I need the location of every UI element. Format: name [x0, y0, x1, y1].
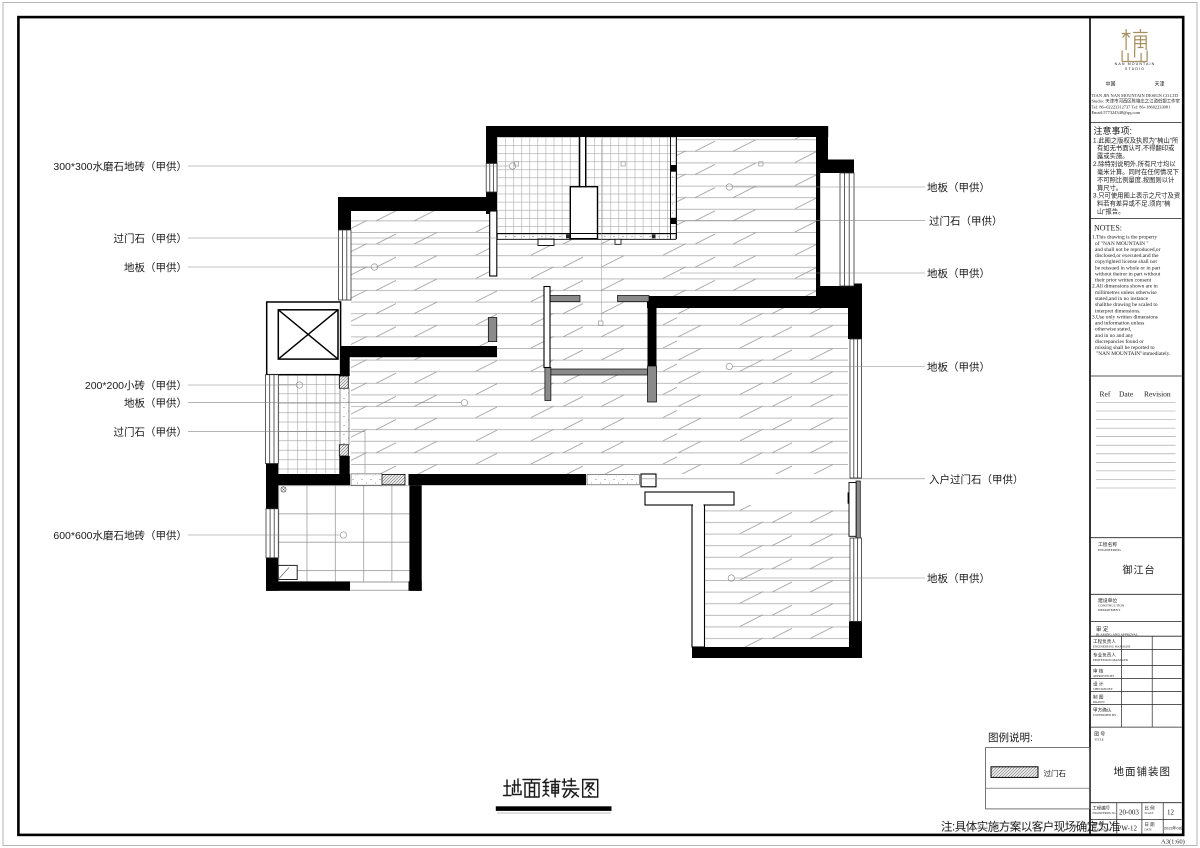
svg-text:and information unless: and information unless — [1095, 320, 1144, 327]
svg-text:图例说明:: 图例说明: — [988, 731, 1033, 744]
svg-text:山"报告。: 山"报告。 — [1097, 207, 1124, 216]
svg-text:过门石: 过门石 — [1044, 768, 1067, 778]
svg-text:Date: Date — [1119, 390, 1134, 399]
svg-text:without theiror in part withou: without theiror in part without — [1095, 272, 1161, 278]
svg-text:工程编号: 工程编号 — [1093, 805, 1111, 812]
svg-text:1.This drawing is the property: 1.This drawing is the property — [1092, 235, 1157, 241]
svg-text:SCALE: SCALE — [1145, 812, 1154, 815]
svg-text:TIAN JIN NAN MOUNTAIN DESIGN C: TIAN JIN NAN MOUNTAIN DESIGN CO.LTD — [1092, 93, 1179, 98]
svg-text:3.Use only written dimensions: 3.Use only written dimensions — [1092, 314, 1158, 320]
svg-text:ENGINEERING MANAGER: ENGINEERING MANAGER — [1093, 645, 1131, 649]
svg-text:过门石（甲供）: 过门石（甲供） — [929, 215, 1003, 228]
svg-text:DRAWN: DRAWN — [1093, 700, 1105, 704]
svg-text:地板（甲供）: 地板（甲供） — [927, 267, 990, 280]
svg-text:disclosed,or executed.and the: disclosed,or executed.and the — [1095, 253, 1159, 259]
svg-text:Revision: Revision — [1144, 390, 1171, 399]
svg-text:2023年08月: 2023年08月 — [1164, 826, 1185, 831]
svg-text:CHECKED BY: CHECKED BY — [1093, 687, 1113, 691]
svg-text:300*300水磨石地砖（甲供）: 300*300水磨石地砖（甲供） — [53, 160, 187, 173]
svg-text:过门石（甲供）: 过门石（甲供） — [114, 232, 188, 245]
svg-text:中国: 中国 — [1106, 81, 1116, 88]
svg-text:DEPARTMENT: DEPARTMENT — [1098, 608, 1121, 612]
svg-text:算尺寸。: 算尺寸。 — [1097, 183, 1122, 192]
svg-text:BLAMING AND APPROVAL: BLAMING AND APPROVAL — [1096, 632, 1138, 636]
svg-text:PW-12: PW-12 — [1118, 825, 1138, 833]
svg-text:2.All dimensions shown are in: 2.All dimensions shown are in — [1092, 284, 1158, 290]
svg-text:注意事项:: 注意事项: — [1094, 125, 1133, 136]
svg-text:be reissued in whole or in par: be reissued in whole or in part — [1095, 265, 1161, 271]
svg-text:Email:577324348@qq.com: Email:577324348@qq.com — [1092, 110, 1141, 115]
svg-text:比 例: 比 例 — [1145, 805, 1156, 812]
svg-text:TITLE: TITLE — [1094, 738, 1103, 742]
svg-text:日 期: 日 期 — [1145, 822, 1156, 828]
svg-text:600*600水磨石地砖（甲供）: 600*600水磨石地砖（甲供） — [53, 529, 187, 542]
svg-text:3.只可使用图上表示之尺寸及资: 3.只可使用图上表示之尺寸及资 — [1093, 191, 1180, 200]
svg-text:地板（甲供）: 地板（甲供） — [927, 181, 990, 194]
svg-text:过门石（甲供）: 过门石（甲供） — [114, 426, 188, 439]
svg-text:地板（甲供）: 地板（甲供） — [124, 397, 187, 410]
svg-text:millimetres unless otherwise: millimetres unless otherwise — [1095, 290, 1157, 296]
svg-text:DRAWING No: DRAWING No — [1093, 829, 1111, 832]
svg-text:1.此图之版权及执照为"楠山"所: 1.此图之版权及执照为"楠山"所 — [1093, 135, 1179, 144]
svg-text:CONFIRMED BY: CONFIRMED BY — [1093, 713, 1117, 717]
svg-text:missing shall be reported to: missing shall be reported to — [1095, 345, 1155, 351]
svg-text:discrepancies found or: discrepancies found or — [1095, 338, 1144, 345]
svg-text:有如无书面认可,不得翻印或: 有如无书面认可,不得翻印或 — [1097, 143, 1175, 152]
svg-text:interpret dimensions.: interpret dimensions. — [1095, 308, 1141, 314]
svg-text:露或实施。: 露或实施。 — [1097, 151, 1128, 160]
svg-text:御江台: 御江台 — [1123, 564, 1156, 577]
svg-text:and shall not be reproduced,or: and shall not be reproduced,or — [1095, 247, 1161, 253]
svg-text:NOTES:: NOTES: — [1094, 224, 1122, 233]
svg-text:毫米计算。同时在任何情况下: 毫米计算。同时在任何情况下 — [1097, 167, 1179, 176]
svg-text:copyrighted license shall not: copyrighted license shall not — [1095, 259, 1157, 265]
svg-text:200*200小砖（甲供）: 200*200小砖（甲供） — [85, 379, 187, 392]
svg-text:天津: 天津 — [1155, 81, 1165, 88]
svg-text:Tel: 86+02223312737 Tel: 86+18: Tel: 86+02223312737 Tel: 86+18602233081 — [1092, 104, 1171, 109]
svg-text:"NAN MOUNTAIN"immediately.: "NAN MOUNTAIN"immediately. — [1096, 351, 1170, 357]
svg-text:A3(1:60): A3(1:60) — [1161, 839, 1185, 846]
svg-text:入户过门石（甲供）: 入户过门石（甲供） — [929, 473, 1024, 486]
svg-text:ENGINEERING No: ENGINEERING No — [1093, 812, 1117, 815]
svg-text:料若有差异或不足,须向"楠: 料若有差异或不足,须向"楠 — [1097, 199, 1171, 208]
svg-text:地面铺装图: 地面铺装图 — [1114, 765, 1172, 778]
svg-text:their prior written consent: their prior written consent — [1095, 278, 1152, 284]
svg-text:STUDIO: STUDIO — [1125, 67, 1145, 71]
svg-text:DATE: DATE — [1145, 829, 1152, 832]
svg-text:20-003: 20-003 — [1119, 809, 1139, 817]
svg-text:地板（甲供）: 地板（甲供） — [927, 572, 990, 585]
svg-text:otherwise stated,: otherwise stated, — [1095, 327, 1132, 333]
svg-text:NAN MOUNTAIN: NAN MOUNTAIN — [1115, 62, 1156, 66]
svg-text:shallthe drawing be scaled to: shallthe drawing be scaled to — [1095, 302, 1158, 308]
svg-text:stated,and in no instance: stated,and in no instance — [1095, 296, 1149, 302]
svg-text:Ref: Ref — [1100, 390, 1111, 399]
svg-text:工程名称: 工程名称 — [1098, 541, 1117, 548]
svg-text:地板（甲供）: 地板（甲供） — [124, 261, 187, 274]
svg-text:PROFESSION MANAGER: PROFESSION MANAGER — [1093, 658, 1129, 662]
svg-text:and in no and any: and in no and any — [1095, 333, 1134, 339]
svg-text:of "NAN MOUNTAIN ": of "NAN MOUNTAIN " — [1095, 240, 1149, 247]
svg-text:地板（甲供）: 地板（甲供） — [927, 361, 990, 374]
svg-text:ENGINEERING: ENGINEERING — [1098, 548, 1122, 552]
svg-text:不可照比例量度,按图则以计: 不可照比例量度,按图则以计 — [1097, 175, 1175, 184]
svg-text:APPROVED BY: APPROVED BY — [1093, 674, 1115, 678]
svg-text:12: 12 — [1167, 809, 1175, 817]
svg-text:2.除特别说明外,所有尺寸均以: 2.除特别说明外,所有尺寸均以 — [1093, 159, 1176, 168]
